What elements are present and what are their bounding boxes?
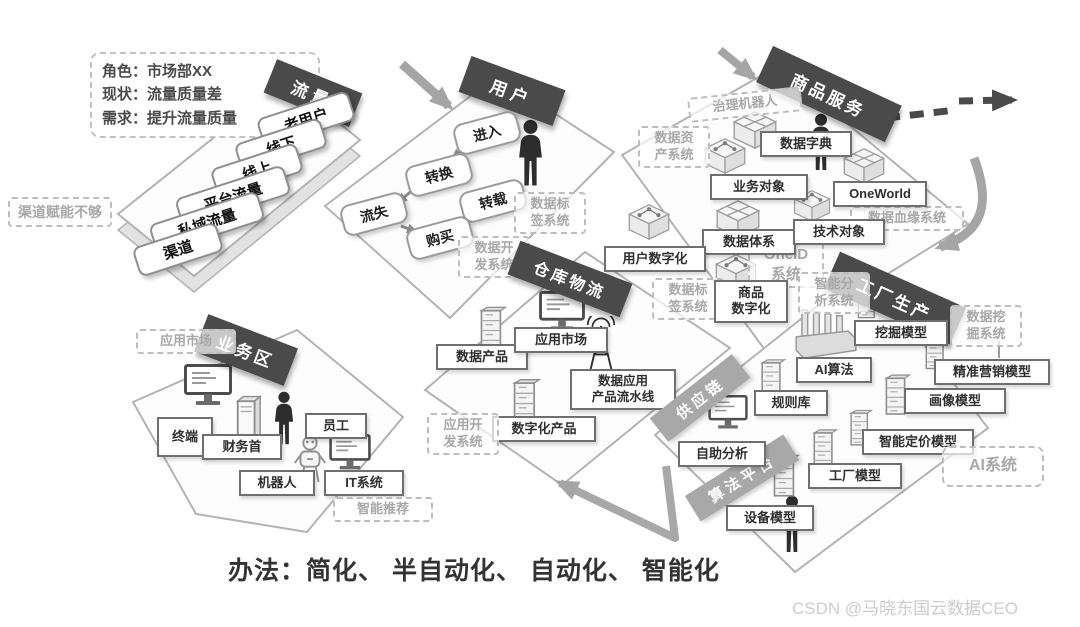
factory-sys-ai: AI系统 — [942, 446, 1044, 487]
arrow-out-dashed-head — [959, 100, 1012, 101]
factory-label-profile-model: 画像模型 — [904, 388, 1006, 414]
warehouse-label-digital-product: 数字化产品 — [492, 416, 596, 442]
business-label-finance: 财务首 — [202, 434, 282, 460]
business-label-it-system: IT系统 — [324, 470, 404, 496]
factory-label-rule-lib: 规则库 — [754, 390, 828, 416]
factory-label-factory-model: 工厂模型 — [808, 463, 902, 489]
method-headline: 办法：简化、 半自动化、 自动化、 智能化 — [228, 551, 720, 587]
factory-label-marketing-model: 精准营销模型 — [934, 359, 1050, 385]
arrow-user-to-goods — [720, 50, 753, 77]
warehouse-sys-dev: 应用开 发系统 — [427, 413, 499, 455]
goods-label-data-dict: 数据字典 — [760, 131, 852, 157]
factory-label-ai-algo: AI算法 — [796, 357, 872, 383]
goods-label-tech-object: 技术对象 — [793, 219, 885, 245]
goods-label-goods-digital: 商品 数字化 — [714, 280, 788, 323]
warehouse-label-pipeline: 数据应用 产品流水线 — [570, 369, 676, 410]
channel-note: 渠道赋能不够 — [8, 197, 112, 227]
watermark: CSDN @马晓东国云数据CEO — [792, 594, 1018, 619]
warehouse-label-app-market: 应用市场 — [514, 327, 608, 353]
goods-label-data-system: 数据体系 — [702, 229, 796, 255]
factory-sys-mining: 数据挖 掘系统 — [950, 305, 1022, 347]
business-label-robot: 机器人 — [239, 470, 315, 496]
business-sys-recommend: 智能推荐 — [333, 497, 433, 522]
arrow-return — [560, 466, 675, 538]
business-label-staff: 员工 — [305, 413, 367, 439]
goods-label-oneworld: OneWorld — [833, 181, 927, 207]
goods-label-user-digital: 用户数字化 — [604, 246, 706, 272]
factory-label-mining-model: 挖掘模型 — [854, 320, 948, 346]
pc-tower-icon — [238, 397, 260, 439]
goods-label-biz-object: 业务对象 — [710, 174, 808, 200]
arrow-traffic-to-user — [402, 64, 449, 106]
goods-sys-asset: 数据资 产系统 — [638, 126, 710, 168]
factory-sys-analysis: 智能分 析系统 — [798, 272, 870, 314]
user-sys-tag: 数据标 签系统 — [514, 192, 586, 234]
diagram-canvas: 角色：市场部XX 现状：流量质量差 需求：提升流量质量 渠道赋能不够 流量 老用… — [0, 0, 1080, 627]
factory-label-device-model: 设备模型 — [726, 505, 814, 531]
business-sys-app-market: 应用市场 — [136, 329, 236, 354]
factory-label-self-analysis: 自助分析 — [678, 441, 766, 467]
